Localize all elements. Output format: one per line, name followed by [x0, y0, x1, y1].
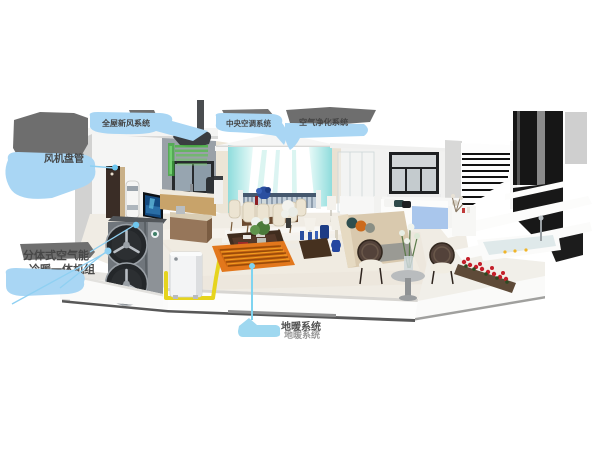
svg-text:分体式空气能: 分体式空气能: [23, 248, 89, 262]
svg-text:中央空调系统: 中央空调系统: [226, 118, 271, 128]
svg-text:全屋新风系统: 全屋新风系统: [101, 118, 150, 128]
svg-text:风机盘管: 风机盘管: [44, 152, 84, 165]
svg-text:地暖系统: 地暖系统: [284, 329, 320, 340]
svg-text:空气净化系统: 空气净化系统: [299, 117, 349, 127]
